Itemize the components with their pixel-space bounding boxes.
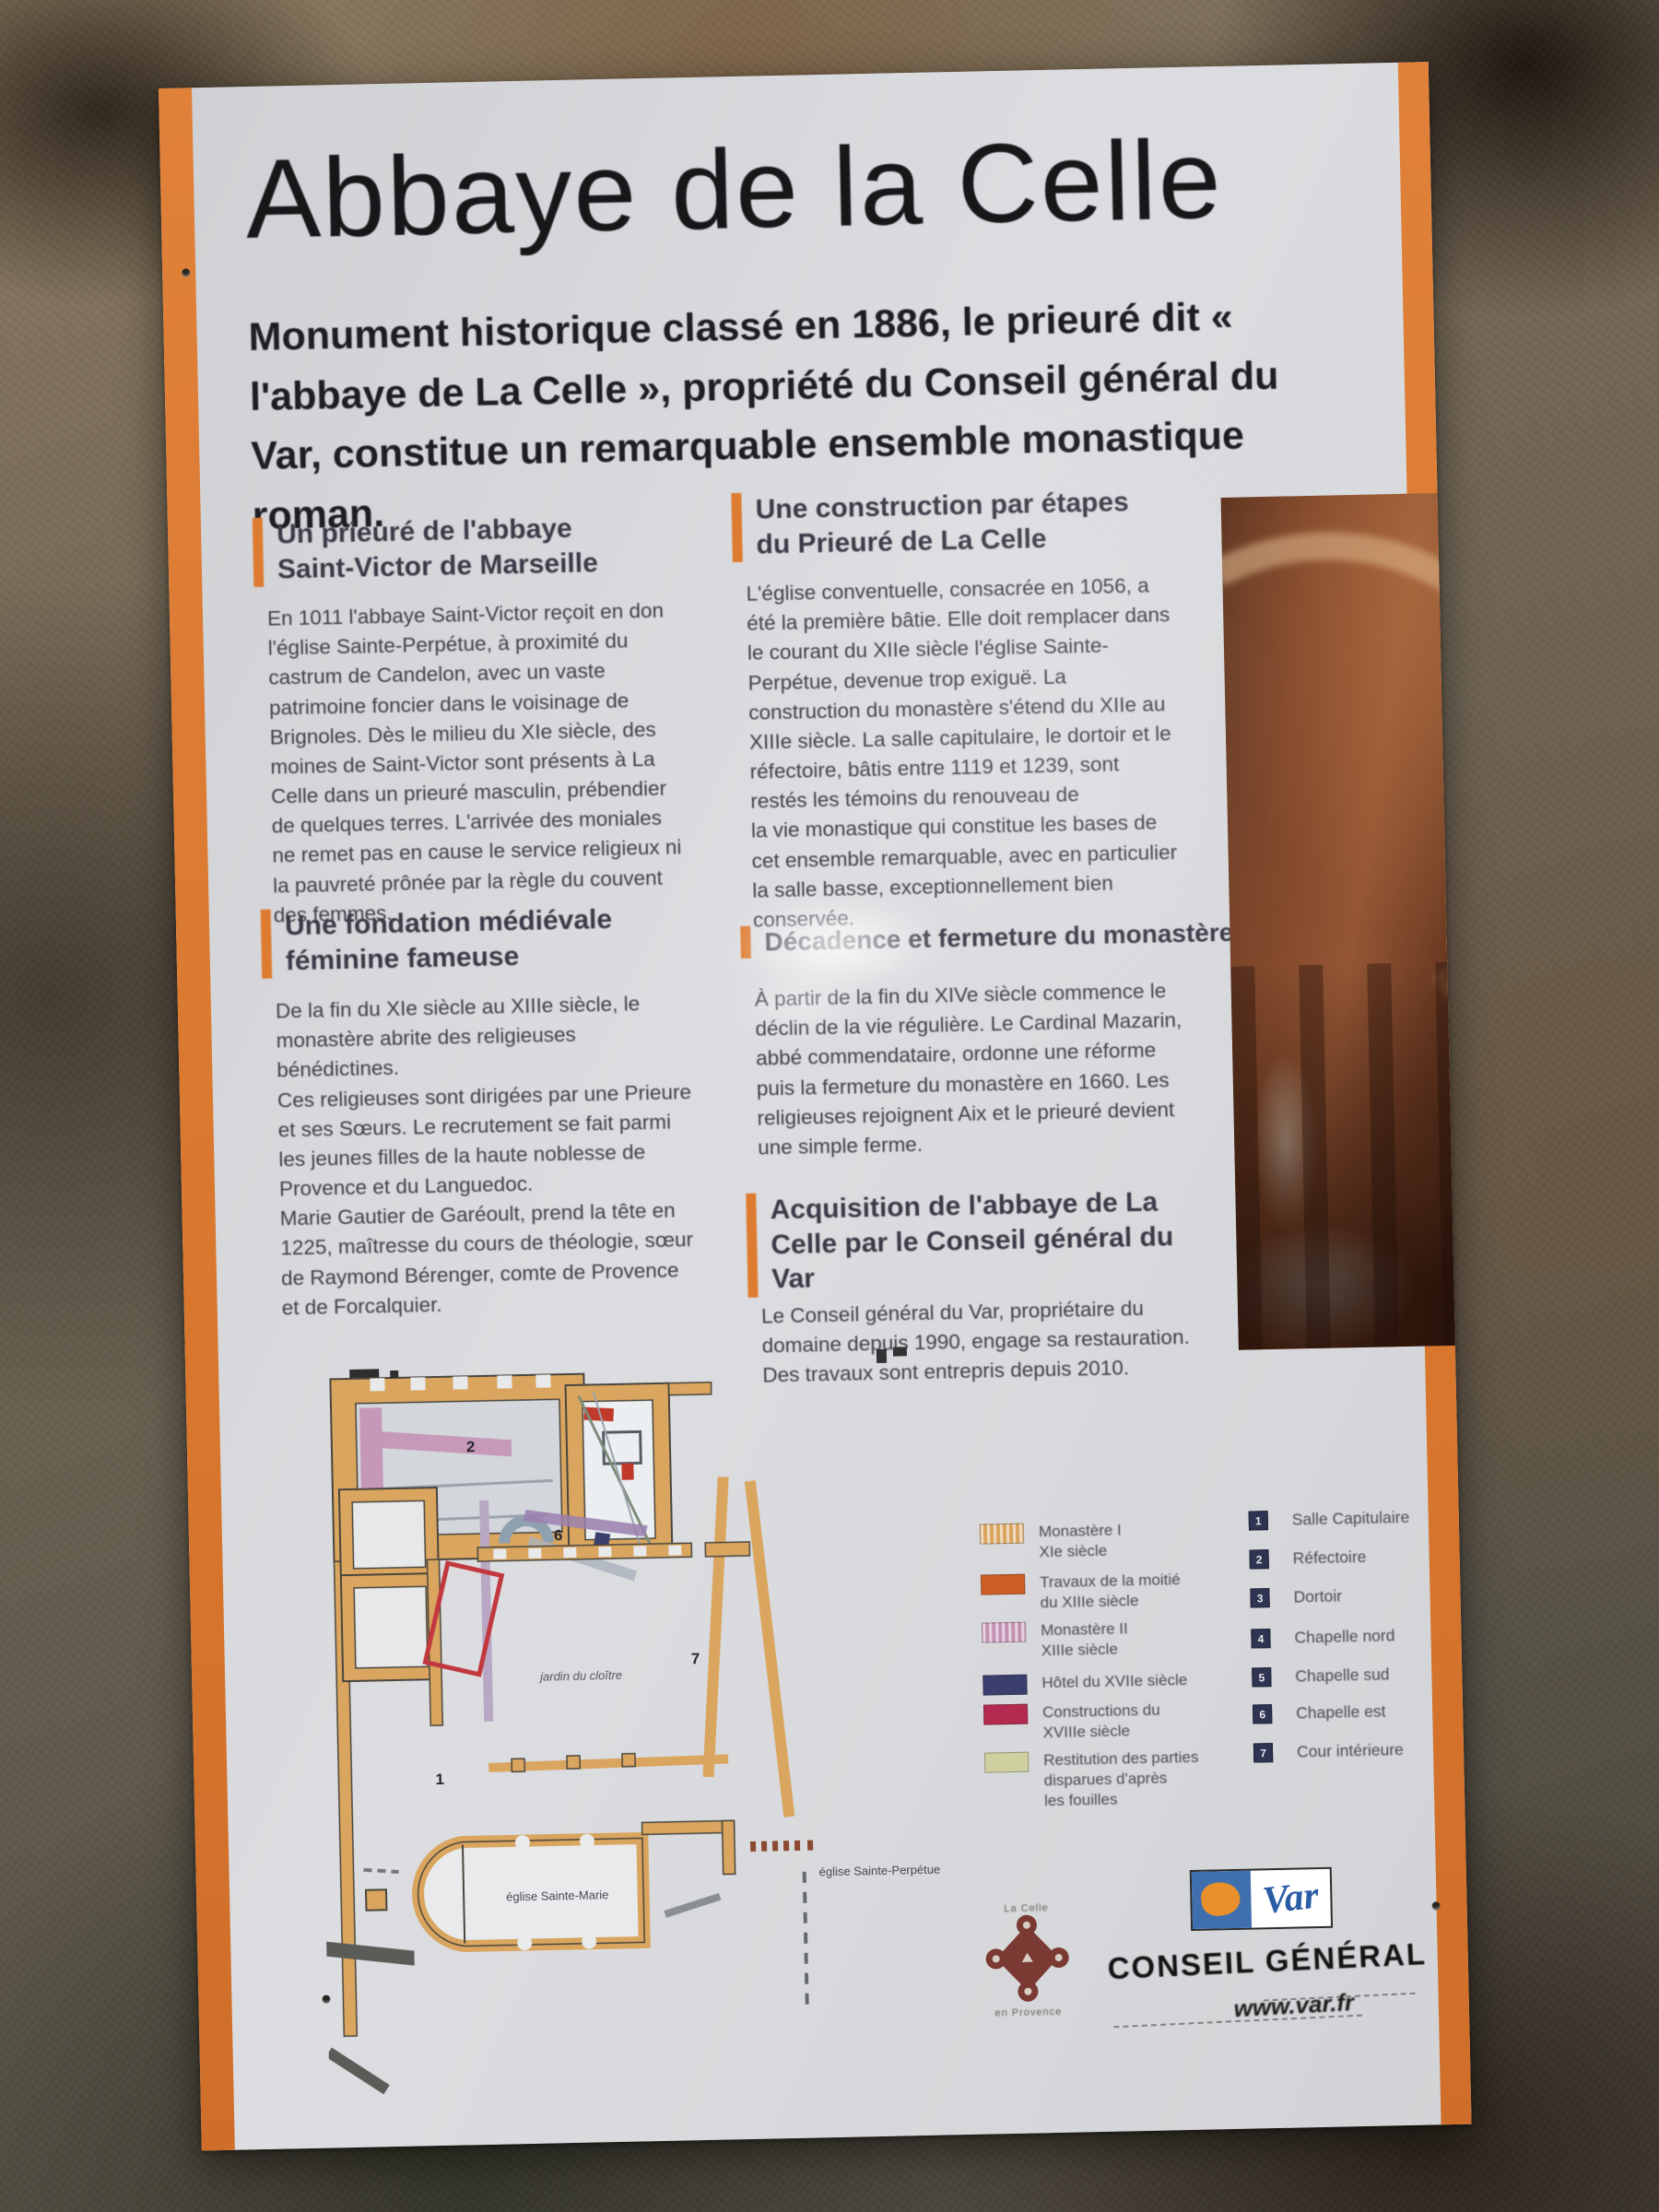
plan-label-church: église Sainte-Marie [506, 1888, 609, 1903]
room-label: Chapelle est [1296, 1702, 1386, 1724]
section-heading: Une construction par étapes du Prieuré d… [731, 484, 1165, 562]
website-url: www.var.fr [1173, 1984, 1414, 2026]
abbey-interior-photo [1221, 493, 1455, 1350]
var-department-logo: Var [1190, 1867, 1333, 1931]
legend-swatch [981, 1574, 1025, 1595]
room-number: 7 [1253, 1743, 1273, 1762]
section-left-2-body: De la fin du XIe siècle au XIIIe siècle,… [276, 988, 699, 1323]
section-left-2: Une fondation médiévale féminine fameuse [261, 901, 658, 979]
commune-logo-bottom-text: en Provence [978, 2006, 1079, 2019]
legend-room-item: 1 Salle Capitulaire [1249, 1508, 1410, 1531]
plan-marker-6: 6 [554, 1526, 563, 1544]
var-logo-text: Var [1248, 1865, 1333, 1931]
legend-room-item: 5 Chapelle sud [1252, 1665, 1390, 1687]
room-number: 3 [1250, 1588, 1269, 1607]
legend-swatch [984, 1752, 1029, 1773]
section-heading: Un prieuré de l'abbaye Saint-Victor de M… [253, 510, 650, 587]
plan-label-ruin: église Sainte-Perpétue [819, 1863, 941, 1879]
section-right-2-body: À partir de la fin du XIVe siècle commen… [755, 976, 1190, 1163]
var-map-shape-icon [1199, 1879, 1242, 1918]
legend-label: Monastère I XIe siècle [1039, 1520, 1123, 1561]
room-label: Cour intérieure [1297, 1740, 1404, 1761]
legend-label: Constructions du XVIIIe siècle [1042, 1700, 1160, 1743]
legend-swatch [982, 1675, 1027, 1696]
legend-swatch [980, 1524, 1024, 1545]
floor-plan-svg: 2 6 7 1 jardin du cloître église Sainte-… [314, 1338, 989, 2117]
legend-room-item: 6 Chapelle est [1253, 1702, 1386, 1724]
room-label: Dortoir [1293, 1586, 1342, 1606]
section-heading: Acquisition de l'abbaye de La Celle par … [746, 1184, 1181, 1297]
var-logo-map-cell [1192, 1871, 1252, 1929]
legend-material-item: Constructions du XVIIIe siècle [983, 1701, 1160, 1745]
room-number: 6 [1253, 1704, 1272, 1724]
commune-logo-top-text: La Celle [975, 1902, 1077, 1915]
plan-marker-1: 1 [435, 1771, 444, 1788]
legend-room-item: 3 Dortoir [1250, 1586, 1342, 1607]
room-number: 1 [1249, 1511, 1268, 1530]
commune-logo: La Celle en Provence [975, 1902, 1079, 2019]
plan-marker-7: 7 [691, 1650, 700, 1667]
legend-label: Monastère II XIIIe siècle [1041, 1618, 1128, 1660]
legend-room-item: 2 Réfectoire [1249, 1547, 1366, 1570]
room-number: 2 [1249, 1549, 1268, 1569]
legend-material-item: Travaux de la moitié du XIIIe siècle [981, 1571, 1181, 1614]
legend-material-item: Restitution des parties disparues d'aprè… [984, 1748, 1199, 1812]
room-number: 4 [1251, 1629, 1270, 1648]
floor-plan: 2 6 7 1 jardin du cloître église Sainte-… [314, 1338, 989, 2117]
room-label: Réfectoire [1292, 1547, 1366, 1569]
section-left-1-body: En 1011 l'abbaye Saint-Victor reçoit en … [267, 595, 690, 930]
legend-label: Travaux de la moitié du XIIIe siècle [1040, 1570, 1181, 1613]
commune-emblem-icon [984, 1913, 1071, 2004]
panel-title: Abbaye de la Celle [244, 114, 1224, 264]
room-number: 5 [1252, 1667, 1271, 1687]
legend-material-item: Monastère I XIe siècle [980, 1521, 1123, 1563]
legend-swatch [983, 1704, 1028, 1725]
section-right-3: Acquisition de l'abbaye de La Celle par … [746, 1184, 1181, 1297]
section-right-1-body: L'église conventuelle, consacrée en 1056… [746, 571, 1184, 935]
information-panel: Abbaye de la Celle Monument historique c… [159, 62, 1472, 2150]
legend-label: Restitution des parties disparues d'aprè… [1043, 1747, 1200, 1811]
conseil-general-wordmark: CONSEIL GÉNÉRAL [1096, 1936, 1438, 1987]
legend-material-item: Hôtel du XVIIe siècle [982, 1671, 1187, 1696]
legend-room-item: 4 Chapelle nord [1251, 1626, 1394, 1648]
legend-label: Hôtel du XVIIe siècle [1041, 1670, 1187, 1693]
legend-material-item: Monastère II XIIIe siècle [982, 1619, 1128, 1662]
section-heading: Une fondation médiévale féminine fameuse [261, 901, 658, 979]
legend-room-item: 7 Cour intérieure [1253, 1740, 1404, 1762]
room-label: Chapelle nord [1294, 1626, 1394, 1647]
section-right-1: Une construction par étapes du Prieuré d… [731, 484, 1165, 562]
section-left-1: Un prieuré de l'abbaye Saint-Victor de M… [253, 510, 650, 587]
room-label: Salle Capitulaire [1292, 1508, 1410, 1530]
room-label: Chapelle sud [1295, 1665, 1390, 1686]
plan-marker-2: 2 [466, 1438, 476, 1455]
legend-swatch [982, 1622, 1026, 1643]
plan-label-cloister: jardin du cloître [538, 1668, 622, 1684]
